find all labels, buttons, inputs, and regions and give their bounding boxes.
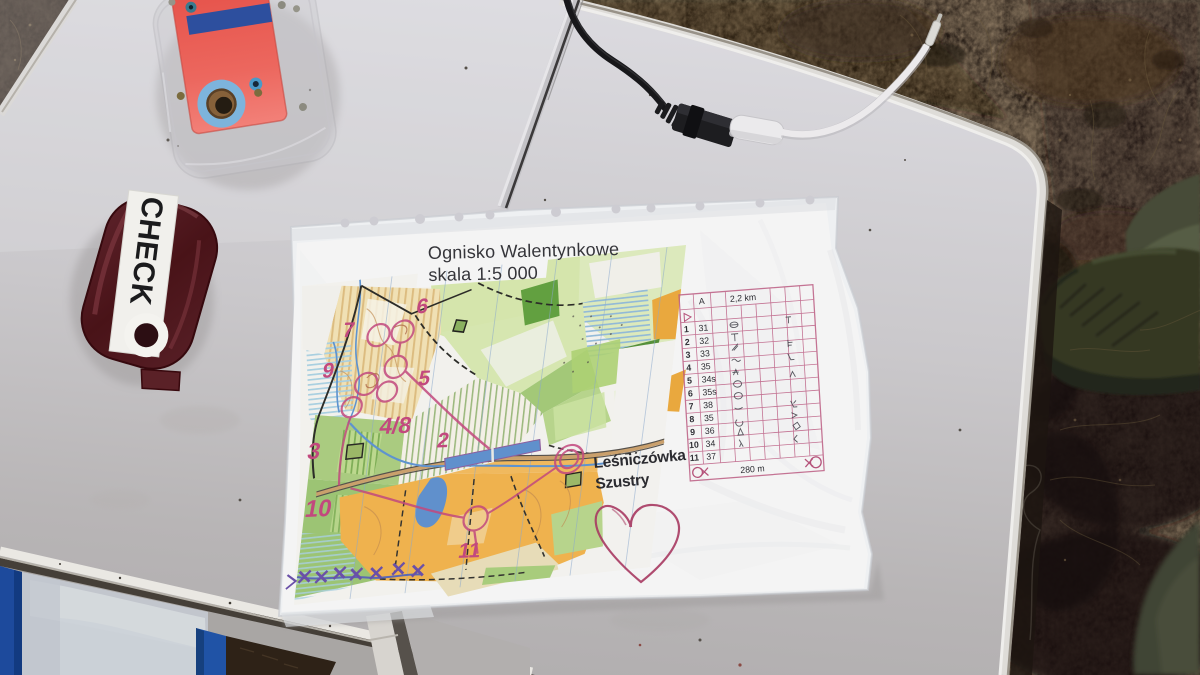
svg-text:8: 8 (689, 414, 695, 424)
svg-text:1: 1 (684, 324, 690, 334)
svg-text:9: 9 (690, 427, 696, 437)
svg-text:36: 36 (704, 425, 714, 436)
svg-text:A: A (699, 296, 706, 307)
svg-text:33: 33 (700, 348, 710, 359)
svg-text:11: 11 (690, 452, 700, 463)
svg-text:31: 31 (698, 322, 708, 333)
svg-text:35s: 35s (702, 386, 717, 397)
svg-text:38: 38 (703, 400, 713, 411)
svg-text:34: 34 (705, 438, 715, 449)
svg-text:6: 6 (688, 388, 694, 398)
svg-text:37: 37 (706, 451, 716, 462)
svg-text:280 m: 280 m (740, 463, 765, 475)
svg-text:3: 3 (685, 350, 691, 360)
svg-text:4/8: 4/8 (377, 412, 413, 439)
svg-text:34s: 34s (701, 373, 716, 384)
svg-text:4: 4 (686, 362, 692, 372)
svg-text:2: 2 (684, 337, 690, 347)
svg-text:35: 35 (704, 412, 714, 423)
svg-text:Ognisko Walentynkowe: Ognisko Walentynkowe (428, 239, 620, 263)
svg-text:35: 35 (701, 361, 711, 372)
svg-text:11: 11 (456, 539, 482, 563)
svg-text:2,2 km: 2,2 km (730, 292, 757, 304)
svg-text:7: 7 (688, 401, 694, 411)
svg-text:10: 10 (303, 495, 334, 523)
svg-text:5: 5 (687, 375, 693, 385)
svg-text:32: 32 (699, 335, 709, 346)
svg-text:10: 10 (689, 439, 699, 450)
svg-text:skala 1:5 000: skala 1:5 000 (428, 263, 538, 285)
